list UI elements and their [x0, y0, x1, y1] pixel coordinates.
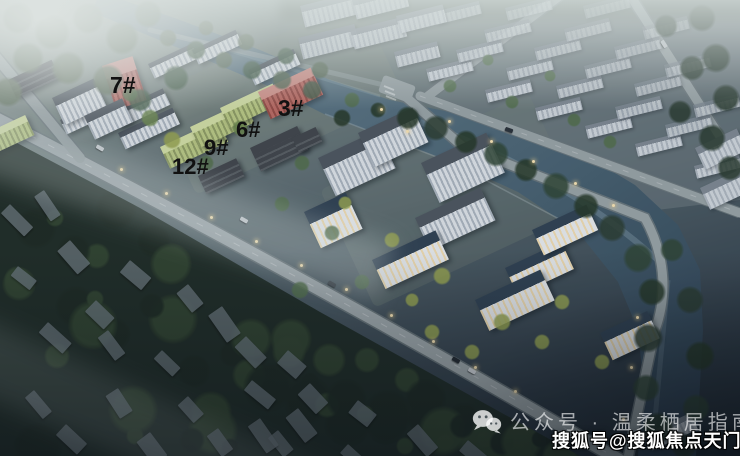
- building-label-12: 12#: [172, 156, 209, 178]
- aerial-render-scene: 7# 3# 6# 9# 12# 公众号 · 温柔栖居指南 搜狐号@搜狐焦点天门站: [0, 0, 740, 456]
- building-label-6: 6#: [236, 119, 260, 141]
- wechat-icon: [472, 408, 502, 434]
- sohu-watermark: 搜狐号@搜狐焦点天门站: [552, 427, 740, 453]
- building-label-7: 7#: [110, 74, 136, 97]
- car: [468, 367, 477, 374]
- car: [660, 40, 668, 49]
- building-label-3: 3#: [278, 97, 304, 120]
- car: [452, 356, 461, 363]
- car: [505, 127, 514, 133]
